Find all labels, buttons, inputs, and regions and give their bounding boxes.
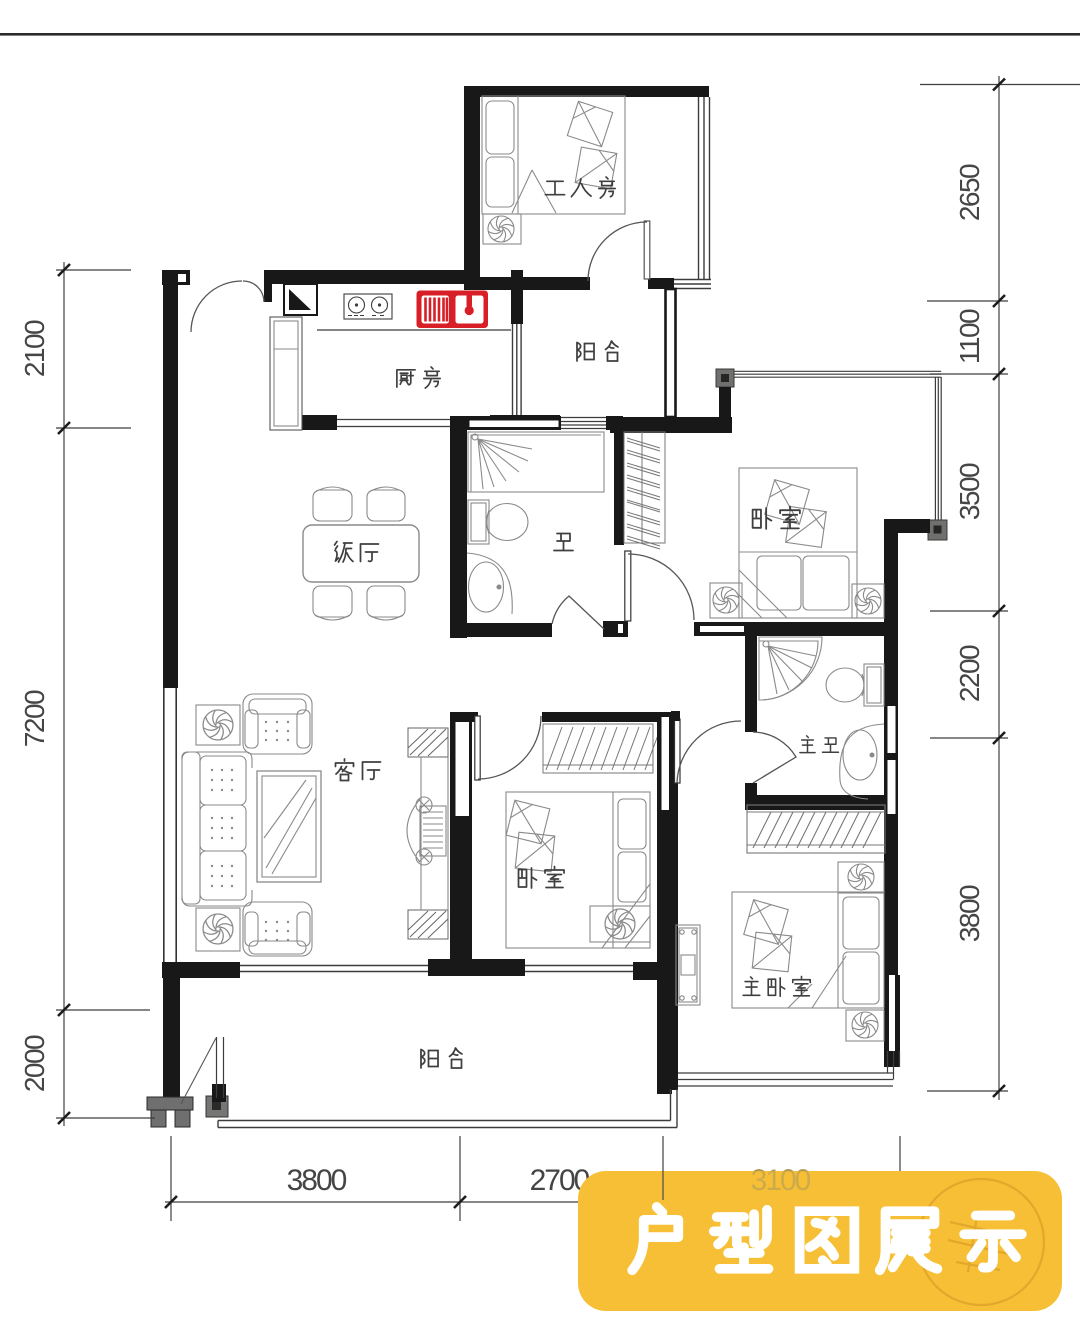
svg-text:3100: 3100 <box>751 1164 811 1197</box>
svg-text:2100: 2100 <box>19 320 50 377</box>
svg-text:2650: 2650 <box>954 164 985 221</box>
svg-text:3500: 3500 <box>954 463 985 520</box>
svg-text:3800: 3800 <box>954 885 985 942</box>
svg-text:2200: 2200 <box>954 645 985 702</box>
svg-text:2000: 2000 <box>19 1035 50 1092</box>
svg-text:1100: 1100 <box>954 309 985 364</box>
svg-text:7200: 7200 <box>19 690 50 747</box>
svg-text:3800: 3800 <box>287 1164 347 1197</box>
